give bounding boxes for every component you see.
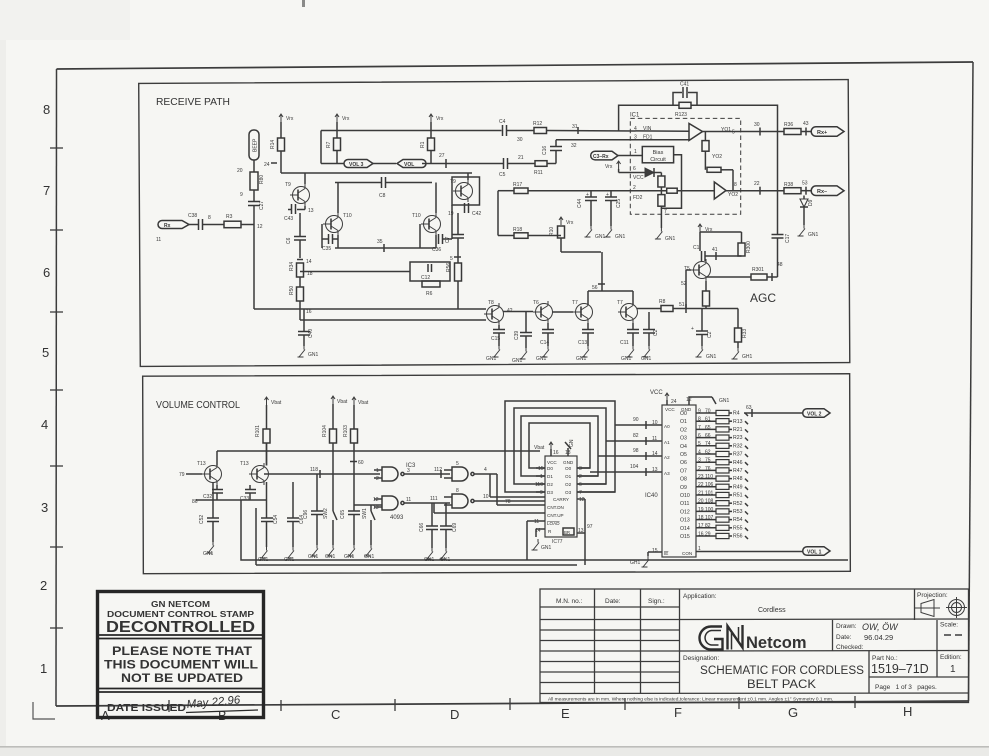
svg-text:C40: C40 (308, 329, 314, 338)
svg-text:VOL 3: VOL 3 (349, 162, 364, 168)
svg-text:T8: T8 (488, 300, 494, 306)
svg-text:8: 8 (456, 488, 459, 494)
svg-text:O0: O0 (680, 411, 687, 417)
svg-text:O5: O5 (680, 452, 687, 458)
svg-text:C11: C11 (620, 340, 629, 346)
svg-text:Projection:: Projection: (917, 592, 948, 599)
svg-text:GN1: GN1 (344, 554, 355, 560)
svg-text:30: 30 (517, 137, 523, 143)
svg-text:IC1: IC1 (630, 113, 640, 119)
svg-text:+: + (606, 192, 609, 198)
svg-text:D1: D1 (547, 474, 553, 479)
svg-text:15: 15 (652, 548, 658, 554)
svg-text:CNT.DN: CNT.DN (547, 505, 564, 510)
svg-text:C69: C69 (452, 523, 458, 532)
svg-text:R54: R54 (733, 517, 743, 523)
svg-text:R300: R300 (746, 241, 752, 253)
svg-text:R10: R10 (549, 227, 555, 236)
svg-text:82: 82 (633, 433, 639, 439)
svg-text:A0: A0 (664, 424, 670, 429)
svg-text:13: 13 (308, 208, 314, 214)
svg-text:THIS DOCUMENT WILL: THIS DOCUMENT WILL (104, 658, 258, 672)
svg-text:D: D (450, 707, 459, 722)
svg-text:CNT.UP: CNT.UP (547, 513, 564, 518)
svg-text:2: 2 (633, 185, 636, 191)
svg-text:GN1: GN1 (719, 398, 730, 404)
svg-text:D0: D0 (547, 466, 553, 471)
svg-text:11: 11 (534, 519, 539, 525)
svg-text:C27: C27 (259, 201, 265, 210)
svg-text:VOL: VOL (404, 162, 414, 168)
svg-text:51: 51 (679, 302, 685, 308)
svg-text:IC77: IC77 (552, 539, 563, 545)
svg-text:Rx–: Rx– (817, 189, 827, 195)
svg-text:19: 19 (448, 211, 454, 217)
svg-text:R17: R17 (513, 182, 522, 188)
svg-text:Vrx: Vrx (605, 164, 613, 170)
svg-text:Edition:: Edition: (940, 654, 962, 661)
svg-text:22: 22 (754, 181, 760, 187)
svg-text:All measurements are in mm: All measurements are in mm. Where nothin… (548, 697, 833, 703)
svg-text:11: 11 (156, 237, 161, 243)
svg-text:6: 6 (698, 433, 701, 439)
svg-text:9: 9 (240, 192, 243, 198)
svg-text:GND: GND (563, 460, 574, 465)
svg-text:VCC: VCC (547, 460, 557, 465)
svg-text:A3: A3 (664, 471, 670, 476)
svg-text:20: 20 (237, 168, 243, 174)
svg-text:18: 18 (307, 271, 313, 277)
svg-text:70: 70 (705, 408, 711, 414)
svg-text:O15: O15 (680, 534, 690, 540)
svg-text:1: 1 (634, 149, 637, 155)
svg-text:Vrx: Vrx (436, 116, 444, 122)
svg-text:DECONTROLLED: DECONTROLLED (106, 619, 255, 636)
svg-text:107: 107 (705, 515, 714, 521)
svg-text:19: 19 (698, 507, 704, 513)
svg-text:GN1: GN1 (641, 356, 652, 362)
svg-text:GN1: GN1 (621, 356, 632, 362)
svg-text:R37: R37 (733, 452, 743, 458)
svg-text:VOL 2: VOL 2 (807, 412, 822, 418)
svg-text:R48: R48 (733, 476, 743, 482)
svg-text:20: 20 (698, 499, 704, 505)
svg-text:32: 32 (571, 143, 577, 149)
svg-text:3: 3 (634, 135, 637, 141)
svg-text:BELT PACK: BELT PACK (747, 679, 816, 691)
svg-text:O14: O14 (680, 526, 690, 532)
svg-text:C6: C6 (286, 237, 292, 244)
svg-text:79: 79 (179, 472, 185, 478)
svg-text:R33: R33 (742, 329, 748, 338)
svg-text:R6: R6 (426, 291, 433, 297)
svg-text:2: 2 (376, 476, 379, 482)
svg-text:22: 22 (698, 482, 704, 488)
svg-text:4: 4 (41, 417, 48, 432)
svg-text:10: 10 (483, 494, 489, 500)
svg-text:PLEASE NOTE THAT: PLEASE NOTE THAT (112, 644, 253, 658)
svg-text:R14: R14 (270, 140, 276, 149)
svg-text:Date:: Date: (836, 634, 852, 641)
svg-text:Date:: Date: (605, 598, 621, 605)
svg-text:56: 56 (592, 285, 598, 291)
svg-text:C43: C43 (284, 216, 293, 222)
svg-text:4: 4 (484, 467, 487, 473)
svg-text:R101: R101 (255, 425, 261, 437)
svg-text:GN1: GN1 (595, 234, 606, 240)
svg-text:27: 27 (439, 153, 445, 159)
svg-text:GN1: GN1 (308, 554, 319, 560)
svg-text:B: B (218, 708, 227, 723)
svg-text:O1: O1 (680, 419, 687, 425)
svg-text:R36: R36 (784, 122, 793, 128)
svg-text:1: 1 (376, 468, 379, 474)
svg-text:Page 1 of 3 pages.: Page 1 of 3 pages. (875, 684, 937, 691)
svg-text:R56: R56 (733, 534, 743, 540)
svg-text:118: 118 (310, 467, 318, 473)
svg-text:O3: O3 (565, 490, 572, 495)
svg-text:D9: D9 (808, 199, 814, 206)
svg-text:CON: CON (682, 551, 692, 556)
svg-text:R103: R103 (343, 425, 349, 437)
svg-text:C54: C54 (273, 515, 279, 524)
svg-text:75: 75 (705, 458, 711, 464)
svg-text:21: 21 (518, 155, 524, 161)
svg-text:GN1: GN1 (706, 354, 717, 360)
svg-text:Vbat: Vbat (337, 399, 348, 405)
svg-text:C39: C39 (514, 331, 520, 340)
svg-text:82: 82 (705, 523, 711, 529)
svg-text:7: 7 (698, 425, 701, 431)
svg-text:108: 108 (705, 499, 714, 505)
svg-text:104: 104 (630, 464, 639, 470)
svg-text:8: 8 (43, 102, 50, 117)
svg-text:5: 5 (732, 130, 735, 136)
svg-text:66: 66 (705, 433, 711, 439)
svg-text:DATE ISSUED: DATE ISSUED (107, 703, 186, 714)
svg-text:M.N. no.:: M.N. no.: (556, 598, 583, 605)
svg-text:T7: T7 (617, 300, 623, 306)
svg-text:C65: C65 (340, 510, 346, 519)
svg-text:O9: O9 (680, 485, 687, 491)
svg-text:O1: O1 (565, 474, 572, 479)
svg-text:Drawn:: Drawn: (836, 623, 857, 630)
svg-text:30: 30 (754, 122, 760, 128)
svg-text:E: E (561, 706, 570, 721)
svg-text:C7: C7 (445, 236, 451, 243)
svg-text:Bias: Bias (653, 150, 664, 156)
svg-text:9: 9 (540, 490, 543, 496)
svg-text:O0: O0 (565, 466, 572, 471)
svg-text:C96: C96 (303, 510, 309, 519)
svg-text:C12: C12 (421, 275, 430, 281)
svg-text:60: 60 (358, 460, 364, 466)
svg-text:D2: D2 (547, 482, 553, 487)
svg-text:C5: C5 (499, 172, 506, 178)
svg-text:VOL 1: VOL 1 (807, 550, 822, 556)
svg-text:110: 110 (535, 482, 543, 488)
svg-text:8: 8 (698, 417, 701, 423)
svg-text:65: 65 (705, 425, 711, 431)
svg-text:4093: 4093 (390, 515, 404, 521)
svg-text:Vrx: Vrx (566, 220, 574, 226)
svg-text:GN1: GN1 (203, 551, 214, 557)
svg-text:Rx: Rx (164, 223, 171, 229)
svg-text:Sign.:: Sign.: (648, 598, 665, 605)
svg-text:R53: R53 (733, 509, 743, 515)
svg-text:AGC: AGC (750, 291, 776, 305)
svg-text:41: 41 (712, 247, 718, 253)
svg-text:5: 5 (456, 461, 459, 467)
svg-text:Rx+: Rx+ (817, 130, 827, 136)
svg-text:Vbat: Vbat (271, 400, 282, 406)
svg-text:GN1: GN1 (536, 356, 547, 362)
svg-text:BEEP: BEEP (253, 138, 259, 152)
svg-text:74: 74 (705, 441, 711, 447)
svg-text:23: 23 (698, 474, 704, 480)
svg-text:T13: T13 (197, 461, 206, 467)
svg-text:T6: T6 (533, 300, 539, 306)
svg-text:16: 16 (553, 450, 559, 456)
svg-text:R3: R3 (226, 214, 233, 220)
svg-text:63: 63 (746, 405, 752, 411)
svg-text:R123: R123 (675, 112, 687, 118)
svg-text:C16: C16 (542, 146, 548, 155)
svg-text:90: 90 (633, 417, 639, 423)
svg-text:5: 5 (698, 441, 701, 447)
svg-text:R301: R301 (752, 267, 764, 273)
svg-text:Checked:: Checked: (836, 644, 864, 651)
svg-text:O8: O8 (680, 477, 687, 483)
svg-text:Netcom: Netcom (746, 634, 807, 652)
svg-text:18: 18 (698, 515, 704, 521)
svg-text:Part No.:: Part No.: (872, 655, 898, 662)
svg-text:6: 6 (633, 166, 636, 172)
svg-text:SW1: SW1 (362, 508, 368, 519)
svg-text:R51: R51 (733, 493, 743, 499)
svg-text:GH1: GH1 (630, 560, 641, 566)
svg-text:R34: R34 (289, 262, 295, 271)
svg-text:C8: C8 (379, 193, 386, 199)
svg-text:GN1: GN1 (486, 356, 497, 362)
svg-text:2: 2 (698, 466, 701, 472)
svg-text:R4: R4 (733, 411, 740, 417)
svg-text:10: 10 (652, 420, 658, 426)
svg-text:C4: C4 (499, 119, 506, 125)
svg-text:16: 16 (698, 531, 704, 537)
svg-text:96.04.29: 96.04.29 (864, 633, 893, 642)
svg-text:76: 76 (705, 466, 711, 472)
svg-text:BR: BR (564, 530, 570, 535)
svg-text:C1: C1 (693, 245, 700, 251)
svg-text:31: 31 (572, 124, 578, 130)
svg-text:R1: R1 (420, 141, 426, 148)
svg-text:VOLUME CONTROL: VOLUME CONTROL (156, 399, 240, 411)
svg-text:4: 4 (698, 449, 701, 455)
svg-text:GN1: GN1 (308, 352, 319, 358)
svg-text:O4: O4 (680, 444, 687, 450)
svg-text:GN1: GN1 (325, 554, 336, 560)
svg-text:A1: A1 (664, 440, 670, 445)
svg-text:29: 29 (705, 531, 711, 537)
svg-text:Scale:: Scale: (940, 622, 958, 629)
svg-text:11: 11 (406, 497, 411, 503)
svg-text:R52: R52 (733, 501, 743, 507)
svg-text:1: 1 (40, 661, 47, 676)
svg-text:11: 11 (652, 436, 657, 442)
svg-text:111: 111 (430, 496, 438, 502)
svg-text:GN1: GN1 (512, 358, 523, 364)
svg-text:C44: C44 (577, 199, 583, 208)
svg-text:C: C (331, 707, 340, 722)
svg-text:O13: O13 (680, 518, 690, 524)
svg-text:R80: R80 (259, 175, 265, 184)
svg-text:101: 101 (705, 490, 714, 496)
svg-text:Circuit: Circuit (650, 157, 666, 163)
svg-text:C66: C66 (419, 523, 425, 532)
svg-text:CARRY: CARRY (553, 497, 569, 502)
svg-text:8: 8 (734, 182, 737, 188)
svg-text:52: 52 (681, 281, 687, 287)
svg-text:+: + (691, 326, 694, 332)
svg-text:7: 7 (664, 209, 667, 215)
svg-text:IE: IE (664, 551, 668, 556)
svg-text:13: 13 (373, 505, 379, 511)
svg-text:OW, ÖW: OW, ÖW (862, 622, 899, 632)
svg-text:6: 6 (43, 265, 50, 280)
svg-text:4: 4 (634, 126, 637, 132)
svg-text:IC3: IC3 (406, 463, 416, 469)
svg-text:R104: R104 (322, 425, 328, 437)
svg-text:17: 17 (698, 523, 704, 529)
svg-text:9: 9 (698, 408, 701, 414)
svg-text:110: 110 (705, 474, 713, 480)
svg-text:21: 21 (698, 490, 704, 496)
svg-text:T10: T10 (412, 213, 421, 219)
svg-text:14: 14 (652, 451, 658, 457)
svg-text:+: + (586, 192, 589, 198)
svg-text:6: 6 (579, 482, 582, 488)
svg-text:7: 7 (579, 490, 582, 496)
svg-text:12: 12 (579, 497, 585, 503)
svg-text:Designation:: Designation: (683, 655, 719, 662)
svg-text:IC40: IC40 (645, 493, 658, 499)
svg-text:O7: O7 (680, 468, 687, 474)
svg-text:5: 5 (42, 345, 49, 360)
svg-text:R38: R38 (784, 182, 793, 188)
svg-text:1519–71D: 1519–71D (871, 662, 929, 676)
svg-text:3: 3 (698, 458, 701, 464)
svg-text:GN1: GN1 (364, 554, 375, 560)
svg-text:GH1: GH1 (742, 354, 753, 360)
svg-text:VCC: VCC (665, 407, 675, 412)
svg-text:F: F (674, 705, 682, 720)
svg-text:FD1: FD1 (643, 135, 653, 141)
svg-text:T10: T10 (343, 213, 352, 219)
svg-text:T13: T13 (240, 461, 249, 467)
svg-text:61: 61 (705, 417, 711, 423)
svg-text:15: 15 (538, 466, 544, 472)
svg-text:O11: O11 (680, 501, 690, 507)
svg-text:R11: R11 (534, 170, 543, 176)
svg-text:R50: R50 (289, 286, 295, 295)
svg-text:GN: GN (569, 439, 575, 447)
svg-text:24: 24 (264, 162, 270, 168)
svg-text:R49: R49 (733, 484, 743, 490)
svg-text:13: 13 (652, 467, 658, 473)
svg-text:C42: C42 (472, 211, 481, 217)
svg-text:G: G (788, 705, 798, 720)
svg-text:VIN: VIN (643, 126, 652, 132)
svg-text:97: 97 (587, 524, 593, 530)
svg-text:R46: R46 (733, 460, 743, 466)
svg-text:R21: R21 (733, 427, 743, 433)
svg-text:R32: R32 (733, 443, 743, 449)
svg-text:C41: C41 (680, 82, 689, 88)
svg-text:C35: C35 (322, 246, 331, 252)
svg-text:100: 100 (705, 507, 714, 513)
svg-text:C32: C32 (203, 494, 212, 500)
svg-text:R18: R18 (513, 227, 522, 233)
svg-text:C38: C38 (188, 213, 197, 219)
svg-text:2: 2 (40, 578, 47, 593)
svg-text:D3: D3 (547, 490, 553, 495)
svg-text:GN NETCOM: GN NETCOM (151, 600, 210, 609)
svg-text:VCC: VCC (633, 175, 644, 181)
svg-text:C13: C13 (578, 340, 587, 346)
svg-text:86: 86 (192, 499, 198, 505)
svg-text:T9: T9 (450, 179, 456, 185)
svg-text:YO2: YO2 (712, 154, 722, 160)
svg-text:GN1: GN1 (615, 234, 626, 240)
svg-text:SW2: SW2 (323, 508, 329, 519)
svg-text:8: 8 (208, 215, 211, 221)
svg-text:C2: C2 (707, 331, 713, 338)
svg-text:53: 53 (802, 181, 808, 187)
svg-text:T9: T9 (285, 182, 291, 188)
svg-text:GN1: GN1 (576, 356, 587, 362)
svg-text:SCHEMATIC FOR CORDLESS: SCHEMATIC FOR CORDLESS (700, 665, 864, 677)
svg-text:R56: R56 (446, 263, 452, 272)
svg-text:C52: C52 (199, 515, 205, 524)
svg-text:R8: R8 (659, 299, 666, 305)
svg-text:H: H (903, 704, 912, 719)
svg-text:C17: C17 (785, 234, 791, 243)
svg-text:12: 12 (373, 497, 379, 503)
svg-text:R12: R12 (533, 121, 542, 127)
svg-text:R13: R13 (733, 419, 743, 425)
svg-text:78: 78 (505, 499, 511, 505)
svg-text:1: 1 (950, 664, 956, 675)
svg-text:FD2: FD2 (633, 195, 643, 201)
svg-text:C2: C2 (653, 329, 659, 336)
svg-text:7: 7 (43, 183, 50, 198)
svg-text:2: 2 (579, 474, 582, 480)
svg-text:14: 14 (306, 259, 312, 265)
svg-text:Vrx: Vrx (286, 116, 294, 122)
svg-text:GN1: GN1 (541, 545, 552, 551)
svg-text:A2: A2 (664, 455, 670, 460)
svg-text:3: 3 (579, 466, 582, 472)
svg-text:Vrx: Vrx (342, 116, 350, 122)
svg-text:12: 12 (257, 224, 263, 230)
svg-text:LOAD: LOAD (547, 521, 560, 526)
svg-text:C25: C25 (616, 199, 622, 208)
svg-text:16: 16 (306, 309, 312, 315)
svg-text:43: 43 (803, 121, 809, 127)
svg-text:O12: O12 (680, 509, 690, 515)
svg-text:O2: O2 (680, 427, 687, 433)
